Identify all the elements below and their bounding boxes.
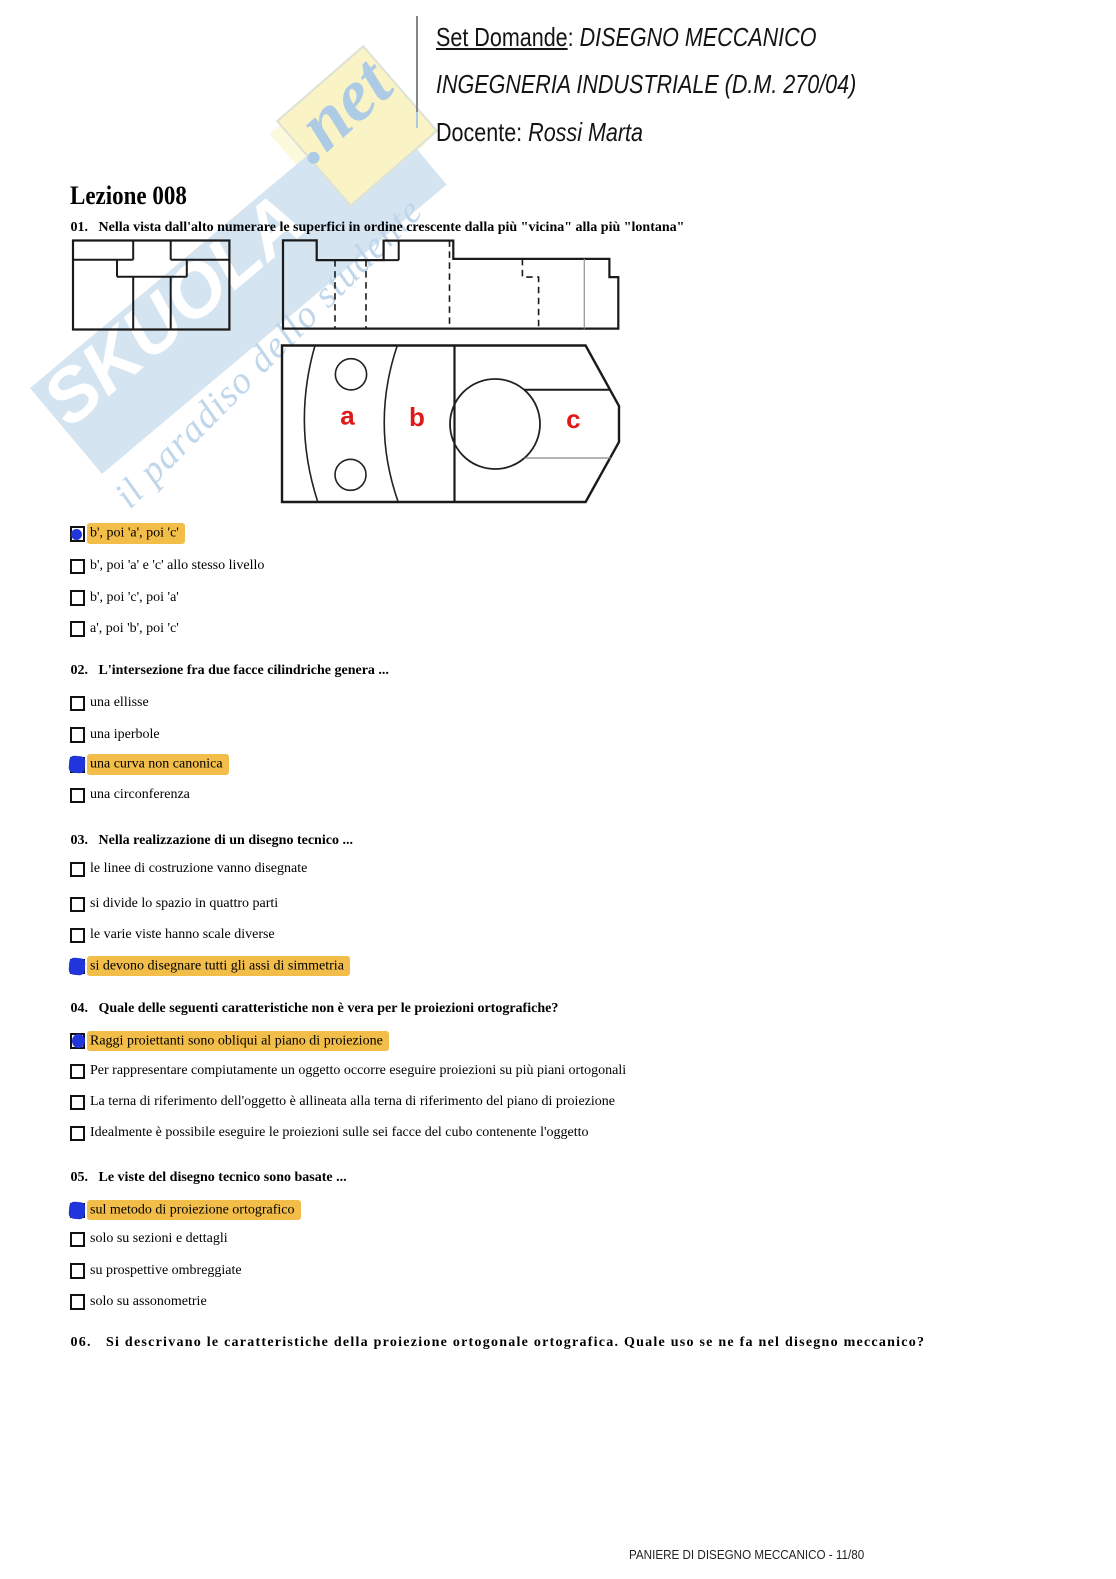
svg-text:c: c <box>566 404 580 434</box>
svg-text:b: b <box>409 402 425 432</box>
svg-text:a: a <box>340 401 355 431</box>
